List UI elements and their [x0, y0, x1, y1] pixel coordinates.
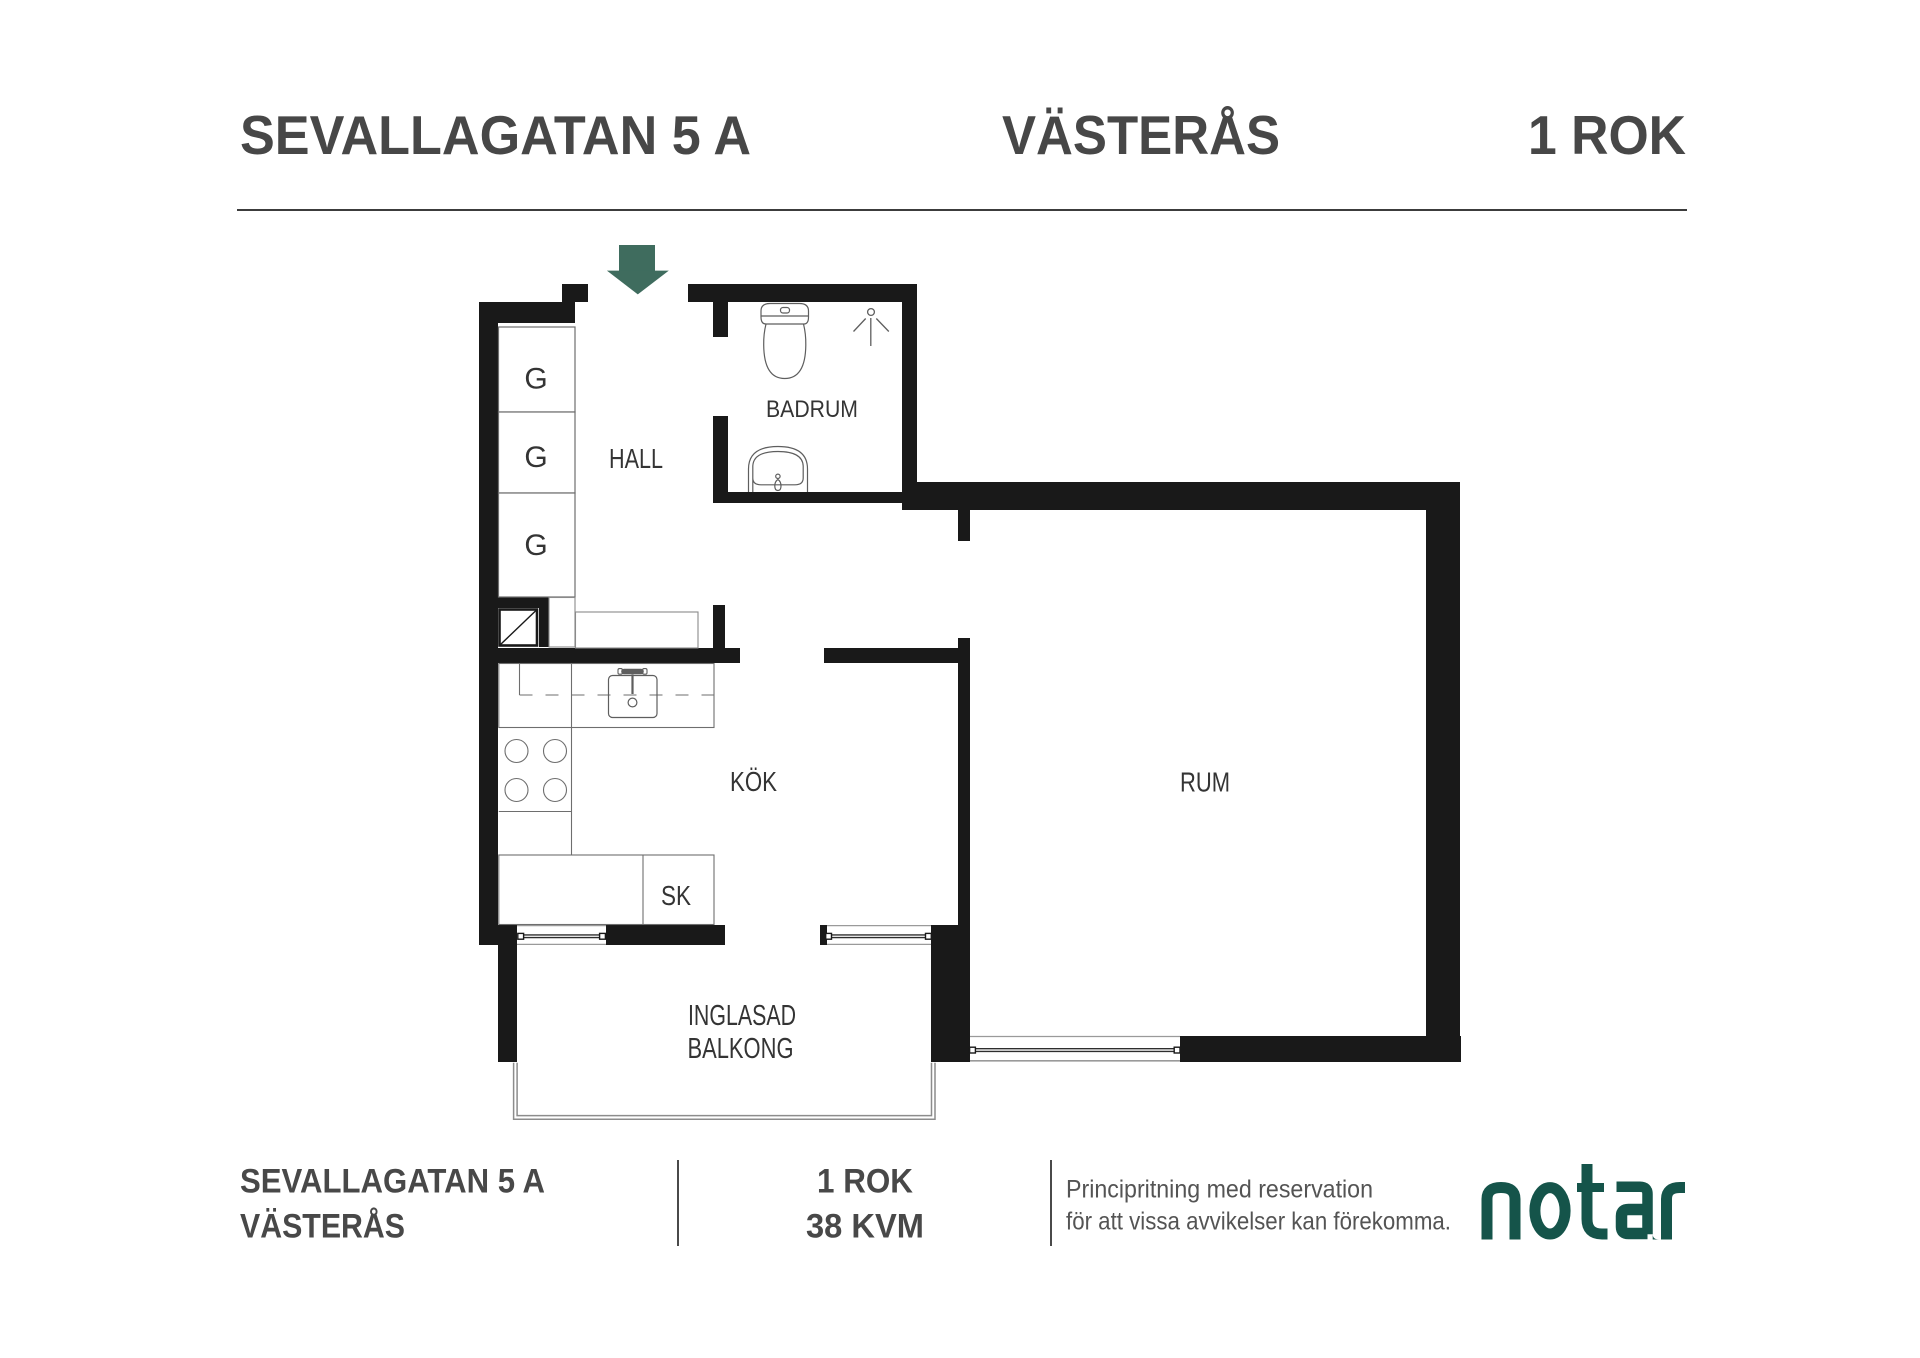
svg-text:VÄSTERÅS: VÄSTERÅS [1002, 104, 1280, 166]
svg-text:VÄSTERÅS: VÄSTERÅS [240, 1208, 405, 1246]
svg-text:HALL: HALL [609, 443, 663, 474]
svg-text:1 ROK: 1 ROK [817, 1163, 913, 1201]
svg-text:SEVALLAGATAN 5 A: SEVALLAGATAN 5 A [240, 1163, 545, 1201]
svg-text:1 ROK: 1 ROK [1528, 104, 1686, 166]
svg-text:BALKONG: BALKONG [688, 1033, 794, 1065]
svg-text:SEVALLAGATAN 5 A: SEVALLAGATAN 5 A [240, 104, 751, 166]
svg-text:Principritning med reservation: Principritning med reservation [1066, 1176, 1373, 1204]
svg-text:BADRUM: BADRUM [766, 396, 858, 423]
svg-text:KÖK: KÖK [730, 766, 777, 797]
svg-text:SK: SK [661, 880, 691, 911]
svg-text:38 KVM: 38 KVM [806, 1208, 924, 1246]
svg-text:G: G [524, 529, 547, 562]
svg-text:RUM: RUM [1180, 767, 1230, 798]
svg-text:för att vissa avvikelser kan f: för att vissa avvikelser kan förekomma. [1066, 1208, 1451, 1236]
svg-text:G: G [524, 441, 547, 474]
svg-text:G: G [524, 363, 547, 396]
svg-text:INGLASAD: INGLASAD [688, 1000, 796, 1032]
